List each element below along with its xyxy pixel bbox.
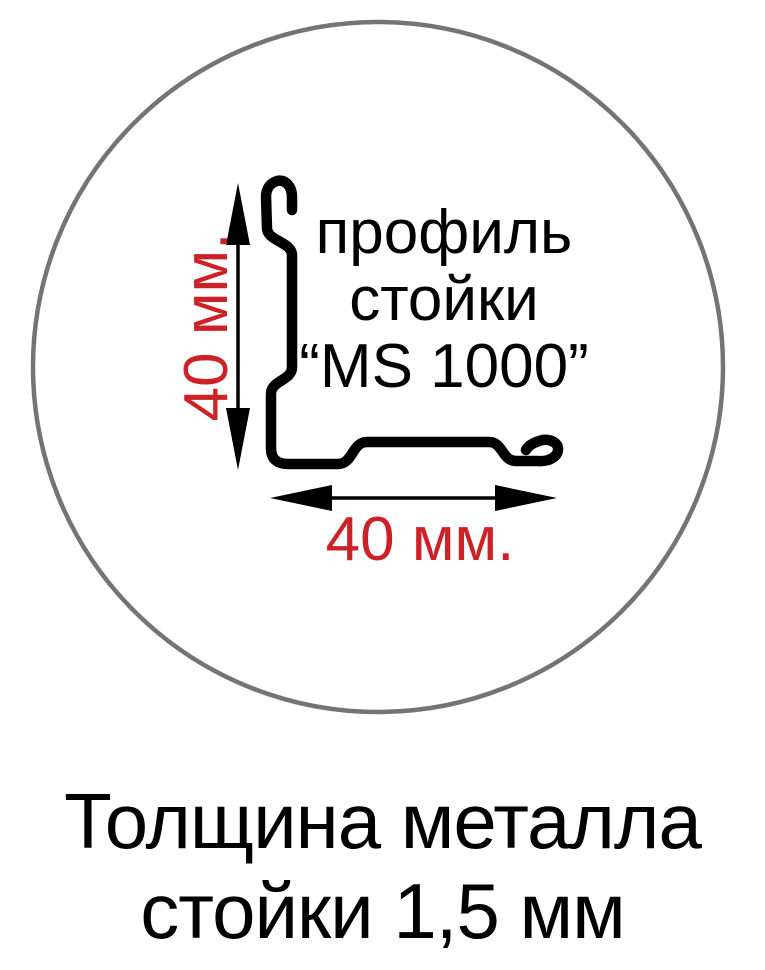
arrow-left-head-icon xyxy=(270,485,332,511)
profile-name-line3: “MS 1000” xyxy=(299,333,588,400)
profile-name-label: профиль стойки “MS 1000” xyxy=(299,199,588,400)
width-dimension-value: 40 мм. xyxy=(326,507,515,573)
height-dimension-value: 40 мм. xyxy=(174,217,240,437)
profile-name-line1: профиль xyxy=(299,199,588,266)
thickness-caption: Толщина металла стойки 1,5 мм xyxy=(0,776,765,956)
thickness-caption-line2: стойки 1,5 мм xyxy=(0,866,765,956)
thickness-caption-line1: Толщина металла xyxy=(0,776,765,866)
page: профиль стойки “MS 1000” 40 мм. 40 мм. Т… xyxy=(0,0,765,970)
profile-name-line2: стойки xyxy=(299,266,588,333)
